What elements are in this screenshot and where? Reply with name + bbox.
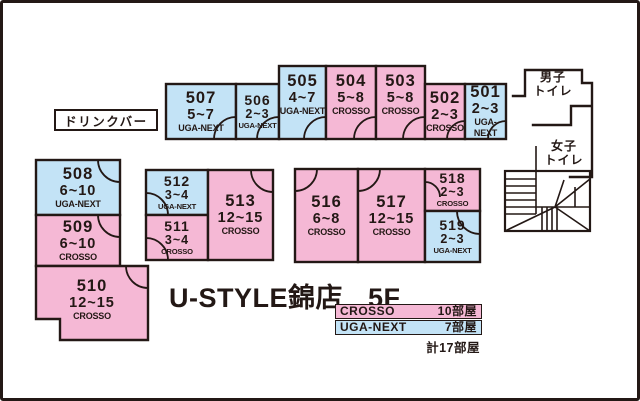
legend-row-uga-next: UGA-NEXT 7部屋	[335, 320, 482, 335]
room-505-shape	[279, 66, 326, 139]
room-501-shape	[465, 84, 506, 139]
room-513-shape	[208, 170, 273, 260]
legend-count: 7部屋	[445, 321, 477, 334]
room-502-shape	[425, 84, 465, 139]
store-name: U-STYLE錦店	[169, 276, 343, 315]
legend: CROSSO 10部屋 UGA-NEXT 7部屋 計17部屋	[335, 304, 482, 356]
room-511-shape	[146, 215, 208, 260]
womens-toilet-label: 女子 トイレ	[535, 140, 593, 167]
drink-bar: ドリンクバー	[54, 109, 158, 131]
floor-plan-canvas: ドリンクバー 男子 トイレ 女子 トイレ 501 2~3 UGA-NEXT 50…	[0, 0, 640, 401]
room-517-shape	[358, 169, 425, 262]
legend-total: 計17部屋	[335, 337, 482, 356]
room-510-shape	[36, 266, 148, 340]
room-512-shape	[146, 170, 208, 215]
room-507-shape	[166, 84, 236, 139]
legend-count: 10部屋	[438, 305, 477, 318]
drink-bar-label: ドリンクバー	[64, 111, 147, 130]
room-503-shape	[376, 66, 425, 139]
room-506-shape	[236, 84, 279, 139]
legend-brand: UGA-NEXT	[340, 321, 407, 334]
legend-row-crosso: CROSSO 10部屋	[335, 304, 482, 319]
mens-toilet-label: 男子 トイレ	[524, 71, 582, 98]
room-504-shape	[326, 66, 376, 139]
room-508-shape	[36, 160, 120, 215]
room-519-shape	[425, 211, 480, 262]
room-516-shape	[295, 169, 358, 262]
room-509-shape	[36, 215, 120, 266]
room-518-shape	[425, 169, 480, 211]
legend-brand: CROSSO	[340, 305, 395, 318]
floor-plan-drawing	[3, 3, 640, 401]
